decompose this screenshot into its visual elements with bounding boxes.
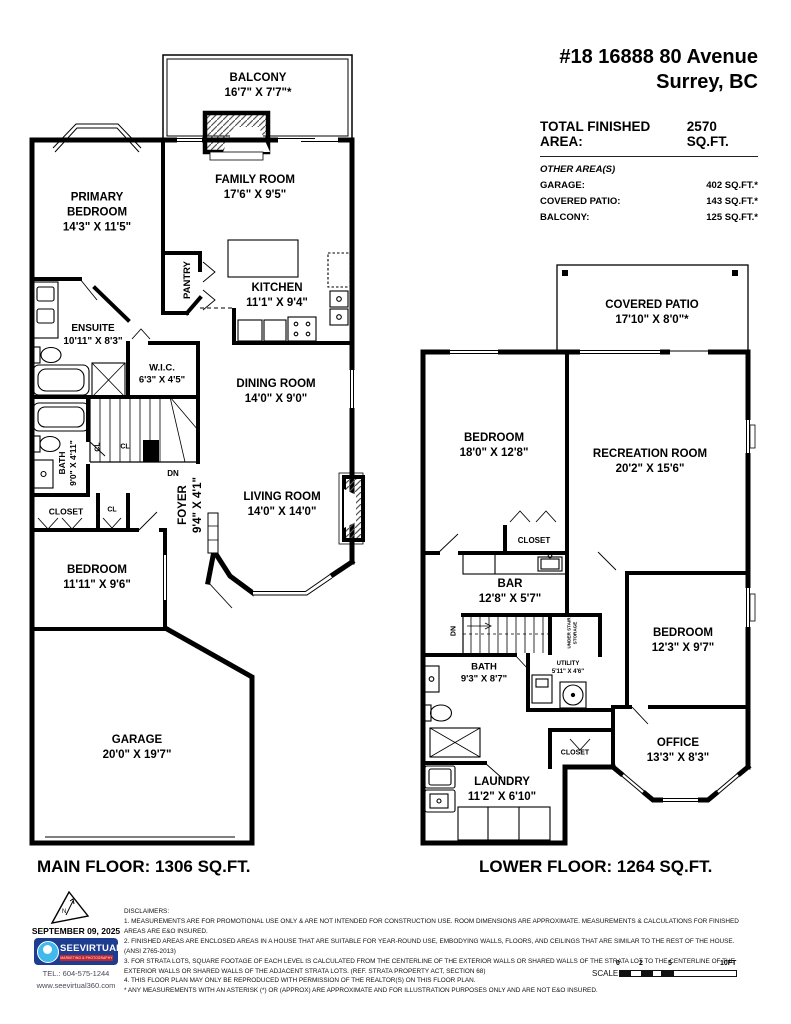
seevirtual-logo-icon <box>37 941 59 963</box>
door-swings <box>38 262 234 608</box>
scale-label: SCALE <box>592 969 618 978</box>
room-label-foyer: FOYER 9'4" X 4'1" <box>176 477 206 533</box>
room-label-bar: BAR 12'8" X 5'7" <box>479 577 541 607</box>
website-url: www.seevirtual360.com <box>30 981 122 990</box>
room-label-closet-2: CLOSET <box>561 748 589 757</box>
bar-counter <box>463 554 567 574</box>
room-label-covered-patio: COVERED PATIO 17'10" X 8'0"* <box>605 298 699 328</box>
stairs <box>463 615 550 655</box>
room-label-ensuite: ENSUITE 10'11" X 8'3" <box>63 322 122 348</box>
stairs-dn-label: DN <box>449 626 458 636</box>
room-label-dining-room: DINING ROOM 14'0" X 9'0" <box>236 377 315 407</box>
room-label-closet-1: CLOSET <box>518 536 550 546</box>
disclaimer-line: 2. FINISHED AREAS ARE ENCLOSED AREAS IN … <box>124 937 744 957</box>
utility-fixtures <box>532 675 586 708</box>
room-label-garage: GARAGE 20'0" X 19'7" <box>103 733 172 763</box>
address-line-1: #18 16888 80 Avenue <box>559 45 758 70</box>
total-area-value: 2570 SQ.FT. <box>687 119 758 149</box>
stairs <box>90 397 198 462</box>
foyer-post <box>208 513 218 553</box>
scale-tick-0: 0 <box>616 960 620 967</box>
room-label-closet: CLOSET <box>49 506 83 517</box>
disclaimers-title: DISCLAIMERS: <box>124 907 744 917</box>
room-label-balcony: BALCONY 16'7" X 7'7"* <box>225 71 292 101</box>
scale-bar: SCALE 0 2 5 10FT <box>592 960 752 982</box>
address-line-2: Surrey, BC <box>559 70 758 95</box>
logo-subtext: MARKETING & PHOTOGRAPHY <box>60 955 113 961</box>
room-label-office: OFFICE 13'3" X 8'3" <box>647 736 709 766</box>
dining-window <box>351 370 354 408</box>
area-row-covered-patio: COVERED PATIO: 143 SQ.FT.* <box>540 196 758 207</box>
room-label-bedroom: BEDROOM 11'11" X 9'6" <box>63 563 131 593</box>
property-address: #18 16888 80 Avenue Surrey, BC <box>559 45 758 95</box>
total-area-label: TOTAL FINISHED AREA: <box>540 119 687 149</box>
lower-floor-plan: COVERED PATIO 17'10" X 8'0"* BEDROOM 18'… <box>420 258 760 858</box>
room-label-bath: BATH 9'0" X 4'11" <box>57 440 79 486</box>
divider-line <box>540 156 758 157</box>
plan-date: SEPTEMBER 09, 2025 <box>31 926 121 936</box>
office-bay-windows <box>622 774 739 802</box>
scale-tick-2: 2 <box>639 960 643 967</box>
logo-text: SEEVIRTUAL <box>60 943 122 954</box>
room-label-cl-3: CL <box>107 505 116 514</box>
room-label-under-stair-storage: UNDER STAIR STORAGE <box>567 616 578 650</box>
room-label-bedroom-1: BEDROOM 18'0" X 12'8" <box>460 431 529 461</box>
area-row-garage: GARAGE: 402 SQ.FT.* <box>540 180 758 191</box>
room-label-cl-2: CL <box>120 442 129 451</box>
room-label-family-room: FAMILY ROOM 17'6" X 9'5" <box>215 173 295 203</box>
garage-door <box>45 837 235 841</box>
room-label-primary-bedroom: PRIMARY BEDROOM 14'3" X 11'5" <box>47 191 147 236</box>
room-label-utility: UTILITY 5'11" X 4'6" <box>552 661 584 677</box>
lower-floor-title: LOWER FLOOR: 1264 SQ.FT. <box>479 857 712 877</box>
seevirtual-logo: SEEVIRTUAL MARKETING & PHOTOGRAPHY <box>34 938 118 965</box>
covered-patio-area-value: 143 SQ.FT.* <box>706 196 758 207</box>
scale-tick-10ft: 10FT <box>720 960 736 967</box>
scale-tick-5: 5 <box>668 960 672 967</box>
balcony-area-label: BALCONY: <box>540 212 589 223</box>
north-arrow-icon: N <box>48 889 94 927</box>
disclaimer-line: * ANY MEASUREMENTS WITH AN ASTERISK (*) … <box>124 986 744 996</box>
room-label-laundry: LAUNDRY 11'2" X 6'10" <box>468 775 536 805</box>
lower-floor-walls <box>420 258 760 858</box>
room-label-bedroom-2: BEDROOM 12'3" X 9'7" <box>652 626 714 656</box>
svg-text:N: N <box>62 909 66 915</box>
other-areas-title: OTHER AREA(S) <box>540 164 758 175</box>
room-label-wic: W.I.C. 6'3" X 4'5" <box>139 363 185 388</box>
fireplace-icon <box>205 113 270 160</box>
room-label-recreation-room: RECREATION ROOM 20'2" X 15'6" <box>593 447 707 477</box>
main-floor-plan: BALCONY 16'7" X 7'7"* PRIMARY BEDROOM 14… <box>25 48 370 853</box>
area-summary: TOTAL FINISHED AREA: 2570 SQ.FT. OTHER A… <box>540 119 758 228</box>
main-floor-title: MAIN FLOOR: 1306 SQ.FT. <box>37 857 250 877</box>
room-label-living-room: LIVING ROOM 14'0" X 14'0" <box>243 490 320 520</box>
total-area-row: TOTAL FINISHED AREA: 2570 SQ.FT. <box>540 119 758 149</box>
phone-number: TEL.: 604-575-1244 <box>30 969 122 978</box>
room-label-kitchen: KITCHEN 11'1" X 9'4" <box>246 281 308 311</box>
disclaimer-line: 1. MEASUREMENTS ARE FOR PROMOTIONAL USE … <box>124 917 744 937</box>
living-fireplace-icon <box>339 473 363 544</box>
bay-window-living <box>253 575 332 596</box>
exterior-walls <box>423 352 748 843</box>
garage-area-value: 402 SQ.FT.* <box>706 180 758 191</box>
bedroom-window <box>164 555 167 600</box>
room-label-bath: BATH 9'3" X 8'7" <box>461 662 507 687</box>
balcony-area-value: 125 SQ.FT.* <box>706 212 758 223</box>
area-row-balcony: BALCONY: 125 SQ.FT.* <box>540 212 758 223</box>
covered-patio-area-label: COVERED PATIO: <box>540 196 620 207</box>
floor-plan-page: { "header": { "address_line1": "#18 1688… <box>0 0 791 1024</box>
room-label-pantry: PANTRY <box>182 261 194 299</box>
room-label-cl-1: CL <box>93 442 102 451</box>
scale-bar-track <box>619 970 737 977</box>
garage-area-label: GARAGE: <box>540 180 585 191</box>
disclaimers-block: DISCLAIMERS: 1. MEASUREMENTS ARE FOR PRO… <box>124 907 744 996</box>
